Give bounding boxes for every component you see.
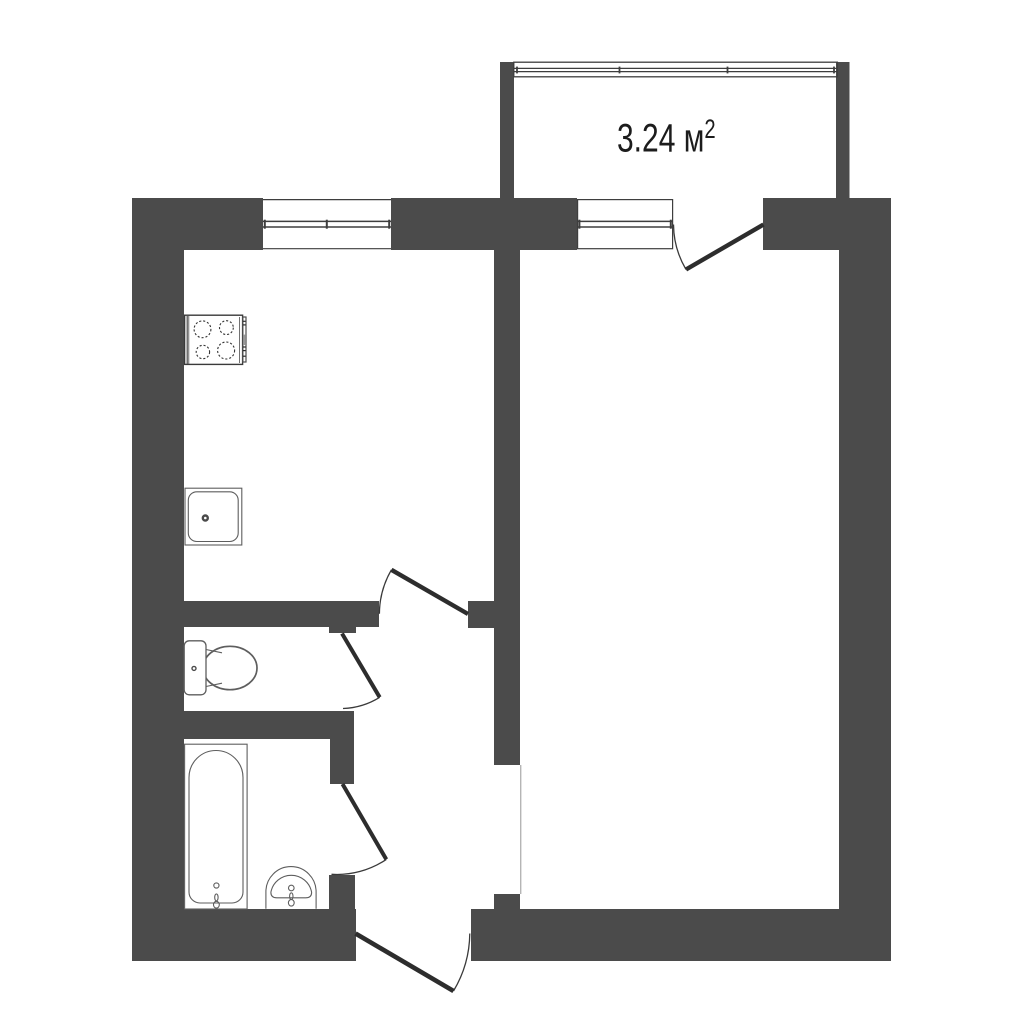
svg-text:3.24 м2: 3.24 м2	[617, 114, 716, 160]
